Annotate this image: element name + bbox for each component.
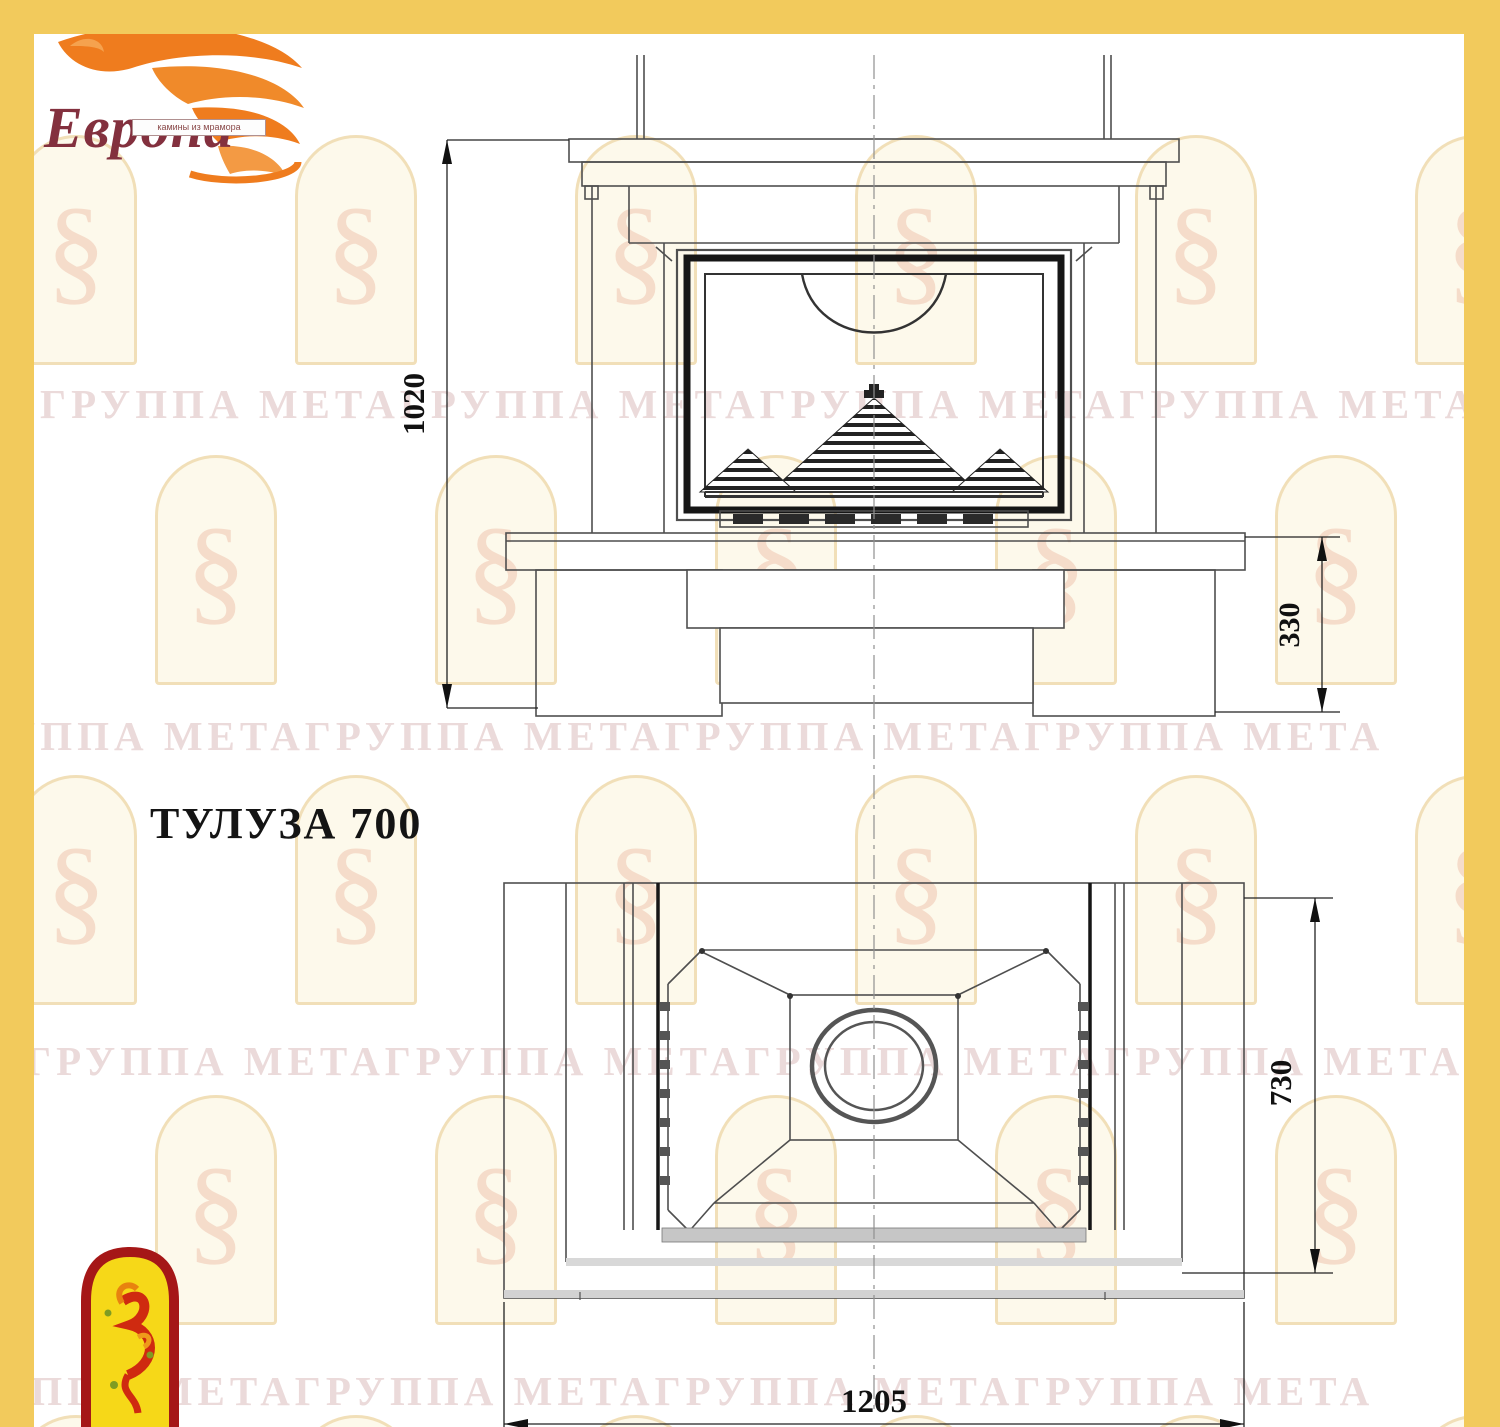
base-blocks — [536, 570, 1215, 716]
dim-label-depth: 730 — [1263, 1060, 1298, 1107]
frame-band-top — [0, 0, 1500, 34]
firebird-emblem-icon — [78, 1243, 182, 1427]
frame-band-left — [0, 0, 34, 1427]
hearth-shelf — [506, 533, 1245, 570]
europa-logo: Европа камины из мрамора — [40, 16, 320, 196]
catalog-page: ГРУППА МЕТАГРУППА МЕТАГРУППА МЕТАГРУППА … — [0, 0, 1500, 1427]
dim-label-width: 1205 — [841, 1384, 907, 1420]
dimension-depth: 730 — [1182, 898, 1333, 1273]
dimension-width: 1205 — [504, 1302, 1244, 1427]
dim-label-height: 1020 — [396, 373, 431, 435]
dimension-base-height: 330 — [1215, 537, 1340, 712]
dim-label-base-height: 330 — [1273, 603, 1306, 648]
fireplace-technical-drawing: 1020 330 730 1205 — [0, 0, 1500, 1427]
front-view — [506, 55, 1245, 716]
page-title: ТУЛУЗА 700 — [150, 798, 422, 849]
brand-tagline: камины из мрамора — [132, 119, 266, 136]
frame-band-right — [1464, 0, 1500, 1427]
dimension-height: 1020 — [396, 140, 569, 708]
